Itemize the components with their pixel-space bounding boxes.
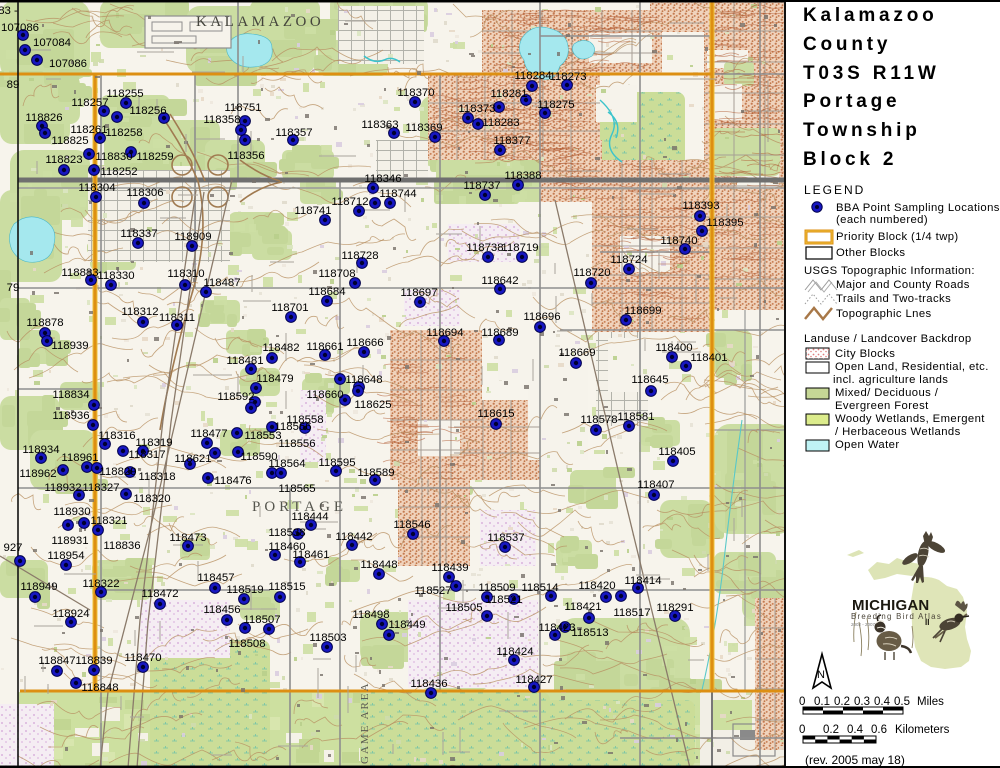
svg-text:118595: 118595 bbox=[318, 457, 355, 469]
svg-text:0.4: 0.4 bbox=[874, 696, 891, 708]
svg-text:incl. agriculture lands: incl. agriculture lands bbox=[833, 374, 948, 386]
svg-text:118258: 118258 bbox=[105, 127, 142, 139]
svg-text:118509: 118509 bbox=[478, 582, 515, 594]
svg-text:Other Blocks: Other Blocks bbox=[836, 247, 905, 259]
svg-text:118724: 118724 bbox=[610, 254, 647, 266]
svg-text:118513: 118513 bbox=[571, 627, 608, 639]
svg-text:118252: 118252 bbox=[100, 166, 137, 178]
svg-text:107086: 107086 bbox=[1, 22, 39, 34]
svg-text:II: II bbox=[925, 618, 929, 627]
svg-text:118291: 118291 bbox=[656, 602, 693, 614]
svg-text:118281: 118281 bbox=[490, 88, 527, 100]
svg-text:118377: 118377 bbox=[493, 135, 530, 147]
svg-text:City Blocks: City Blocks bbox=[835, 348, 895, 360]
svg-text:118521: 118521 bbox=[485, 594, 522, 606]
svg-text:0: 0 bbox=[799, 724, 805, 736]
svg-text:118661: 118661 bbox=[306, 341, 343, 353]
svg-text:118565: 118565 bbox=[278, 483, 315, 495]
svg-text:118954: 118954 bbox=[47, 550, 84, 562]
svg-text:Mixed/ Deciduous /: Mixed/ Deciduous / bbox=[835, 387, 939, 399]
svg-text:BBA Point Sampling Locations: BBA Point Sampling Locations bbox=[836, 202, 1000, 214]
svg-text:118848: 118848 bbox=[81, 682, 118, 694]
svg-text:118337: 118337 bbox=[120, 228, 157, 240]
svg-text:118740: 118740 bbox=[660, 235, 697, 247]
svg-text:118909: 118909 bbox=[174, 231, 211, 243]
svg-text:118829: 118829 bbox=[99, 466, 136, 478]
svg-text:Woody Wetlands, Emergent: Woody Wetlands, Emergent bbox=[835, 413, 985, 425]
svg-text:(rev. 2005 may 18): (rev. 2005 may 18) bbox=[805, 753, 905, 767]
svg-text:927: 927 bbox=[3, 542, 22, 554]
svg-text:118507: 118507 bbox=[243, 614, 280, 626]
svg-text:118448: 118448 bbox=[360, 559, 397, 571]
svg-text:118645: 118645 bbox=[631, 374, 668, 386]
svg-text:89: 89 bbox=[7, 79, 20, 91]
svg-text:118517: 118517 bbox=[613, 607, 650, 619]
svg-text:118393: 118393 bbox=[682, 200, 719, 212]
svg-text:0.6: 0.6 bbox=[871, 724, 887, 736]
svg-text:118878: 118878 bbox=[26, 317, 63, 329]
svg-text:118519: 118519 bbox=[226, 584, 263, 596]
svg-text:118694: 118694 bbox=[426, 327, 463, 339]
svg-text:118697: 118697 bbox=[400, 287, 437, 299]
svg-text:118589: 118589 bbox=[357, 467, 394, 479]
svg-text:118363: 118363 bbox=[361, 119, 398, 131]
svg-text:118322: 118322 bbox=[82, 578, 119, 590]
svg-text:118414: 118414 bbox=[624, 575, 661, 587]
svg-text:118442: 118442 bbox=[335, 531, 372, 543]
svg-text:118830: 118830 bbox=[95, 151, 132, 163]
svg-text:118436: 118436 bbox=[410, 678, 447, 690]
svg-text:118407: 118407 bbox=[637, 479, 674, 491]
svg-text:KALAMAZOO: KALAMAZOO bbox=[196, 14, 324, 30]
svg-text:118823: 118823 bbox=[45, 154, 82, 166]
svg-text:118578: 118578 bbox=[580, 414, 617, 426]
svg-text:118744: 118744 bbox=[379, 188, 416, 200]
svg-text:118261: 118261 bbox=[70, 124, 107, 136]
svg-text:118696: 118696 bbox=[523, 311, 560, 323]
svg-text:118358: 118358 bbox=[203, 114, 240, 126]
svg-text:118395: 118395 bbox=[706, 217, 743, 229]
svg-text:Kilometers: Kilometers bbox=[895, 724, 950, 736]
svg-text:118741: 118741 bbox=[294, 205, 331, 217]
svg-text:118311: 118311 bbox=[159, 312, 195, 324]
svg-text:118883: 118883 bbox=[61, 267, 98, 279]
svg-text:Open Land, Residential, etc.: Open Land, Residential, etc. bbox=[835, 361, 989, 373]
svg-text:118939: 118939 bbox=[51, 340, 88, 352]
svg-text:118256: 118256 bbox=[129, 105, 166, 117]
svg-text:Evergreen Forest: Evergreen Forest bbox=[835, 400, 929, 412]
svg-text:118503: 118503 bbox=[309, 632, 346, 644]
svg-text:Miles: Miles bbox=[917, 696, 944, 708]
svg-text:118505: 118505 bbox=[445, 602, 482, 614]
svg-text:Major and County Roads: Major and County Roads bbox=[836, 279, 970, 291]
svg-text:118537: 118537 bbox=[487, 532, 524, 544]
svg-text:118439: 118439 bbox=[431, 562, 468, 574]
svg-text:118346: 118346 bbox=[364, 173, 401, 185]
svg-text:2002 - 2007: 2002 - 2007 bbox=[851, 622, 876, 627]
svg-text:118461: 118461 bbox=[292, 549, 329, 561]
svg-text:0.4: 0.4 bbox=[847, 724, 864, 736]
svg-text:118666: 118666 bbox=[346, 337, 383, 349]
svg-text:118423: 118423 bbox=[538, 622, 575, 634]
svg-text:118369: 118369 bbox=[405, 122, 442, 134]
svg-text:/ Herbaceous Wetlands: / Herbaceous Wetlands bbox=[835, 426, 961, 438]
svg-text:Open Water: Open Water bbox=[835, 439, 899, 451]
svg-text:118401: 118401 bbox=[690, 352, 727, 364]
svg-text:118936: 118936 bbox=[52, 410, 89, 422]
svg-text:118728: 118728 bbox=[341, 250, 378, 262]
svg-text:118836: 118836 bbox=[103, 540, 140, 552]
svg-text:118689: 118689 bbox=[481, 327, 518, 339]
svg-text:118642: 118642 bbox=[481, 275, 518, 287]
svg-text:118514: 118514 bbox=[521, 582, 558, 594]
svg-text:N: N bbox=[817, 669, 825, 681]
svg-text:118356: 118356 bbox=[227, 150, 264, 162]
svg-text:118962: 118962 bbox=[19, 468, 56, 480]
svg-text:118310: 118310 bbox=[167, 268, 204, 280]
svg-text:Trails and Two-tracks: Trails and Two-tracks bbox=[836, 293, 951, 305]
svg-text:118684: 118684 bbox=[308, 286, 345, 298]
svg-text:118719: 118719 bbox=[501, 242, 538, 254]
svg-text:118259: 118259 bbox=[136, 151, 173, 163]
svg-text:118255: 118255 bbox=[106, 88, 143, 100]
svg-text:118275: 118275 bbox=[537, 99, 574, 111]
svg-text:118388: 118388 bbox=[504, 170, 541, 182]
svg-text:0.5: 0.5 bbox=[894, 696, 910, 708]
svg-text:118316: 118316 bbox=[98, 430, 135, 442]
svg-text:118319: 118319 bbox=[135, 437, 172, 449]
svg-text:118424: 118424 bbox=[496, 646, 533, 658]
svg-text:118321: 118321 bbox=[90, 515, 127, 527]
svg-text:118581: 118581 bbox=[617, 411, 654, 423]
svg-text:118318: 118318 bbox=[138, 471, 175, 483]
svg-text:118615: 118615 bbox=[477, 408, 514, 420]
svg-text:118477: 118477 bbox=[190, 428, 227, 440]
svg-text:118826: 118826 bbox=[25, 112, 62, 124]
svg-text:118961: 118961 bbox=[61, 452, 98, 464]
svg-text:0: 0 bbox=[799, 696, 805, 708]
svg-text:118317: 118317 bbox=[128, 449, 165, 461]
svg-text:118357: 118357 bbox=[275, 127, 312, 139]
svg-text:118738: 118738 bbox=[466, 242, 503, 254]
svg-text:118553: 118553 bbox=[244, 430, 281, 442]
svg-text:118508: 118508 bbox=[228, 638, 265, 650]
svg-text:118479: 118479 bbox=[256, 373, 293, 385]
svg-text:118669: 118669 bbox=[558, 347, 595, 359]
svg-text:118825: 118825 bbox=[51, 135, 88, 147]
svg-text:118648: 118648 bbox=[345, 374, 382, 386]
svg-text:118737: 118737 bbox=[463, 180, 500, 192]
svg-text:118701: 118701 bbox=[271, 302, 308, 314]
svg-text:0.2: 0.2 bbox=[823, 724, 839, 736]
svg-text:118400: 118400 bbox=[655, 342, 692, 354]
svg-text:118538: 118538 bbox=[268, 527, 305, 539]
svg-text:0.3: 0.3 bbox=[854, 696, 870, 708]
svg-text:118930: 118930 bbox=[53, 506, 90, 518]
svg-text:118949: 118949 bbox=[20, 581, 57, 593]
svg-text:118498: 118498 bbox=[352, 609, 389, 621]
svg-text:118257: 118257 bbox=[71, 97, 108, 109]
svg-text:118834: 118834 bbox=[52, 389, 89, 401]
svg-text:118476: 118476 bbox=[214, 475, 251, 487]
svg-text:118330: 118330 bbox=[97, 270, 134, 282]
svg-text:118306: 118306 bbox=[126, 187, 163, 199]
svg-text:118273: 118273 bbox=[549, 71, 586, 83]
svg-text:118699: 118699 bbox=[624, 305, 661, 317]
svg-text:118924: 118924 bbox=[52, 608, 89, 620]
svg-text:118527: 118527 bbox=[414, 585, 451, 597]
svg-text:107084: 107084 bbox=[33, 37, 71, 49]
svg-text:118515: 118515 bbox=[268, 581, 305, 593]
svg-text:Topographic Lnes: Topographic Lnes bbox=[836, 308, 932, 320]
svg-text:118621: 118621 bbox=[174, 453, 211, 465]
svg-text:118456: 118456 bbox=[203, 604, 240, 616]
svg-text:118370: 118370 bbox=[397, 87, 434, 99]
svg-text:118839: 118839 bbox=[75, 655, 112, 667]
svg-text:118481: 118481 bbox=[226, 355, 263, 367]
svg-text:118373: 118373 bbox=[458, 103, 495, 115]
svg-text:118405: 118405 bbox=[658, 446, 695, 458]
svg-text:118556: 118556 bbox=[278, 438, 315, 450]
svg-text:USGS Topographic Information:: USGS Topographic Information: bbox=[804, 265, 975, 277]
svg-text:118283: 118283 bbox=[482, 117, 519, 129]
svg-text:118427: 118427 bbox=[515, 674, 552, 686]
svg-text:118444: 118444 bbox=[291, 511, 328, 523]
svg-text:Landuse / Landcover Backdrop: Landuse / Landcover Backdrop bbox=[804, 333, 972, 345]
svg-text:(each numbered): (each numbered) bbox=[836, 214, 928, 226]
svg-text:118320: 118320 bbox=[133, 493, 170, 505]
svg-text:118327: 118327 bbox=[82, 482, 119, 494]
svg-text:118470: 118470 bbox=[124, 652, 161, 664]
svg-text:118934: 118934 bbox=[22, 444, 59, 456]
svg-text:118473: 118473 bbox=[169, 532, 206, 544]
svg-text:118931: 118931 bbox=[51, 535, 88, 547]
svg-text:118487: 118487 bbox=[203, 277, 240, 289]
svg-text:118751: 118751 bbox=[224, 102, 261, 114]
svg-text:0.1: 0.1 bbox=[814, 696, 830, 708]
svg-text:Priority Block (1/4 twp): Priority Block (1/4 twp) bbox=[836, 231, 959, 243]
svg-text:118482: 118482 bbox=[262, 342, 299, 354]
svg-text:118932: 118932 bbox=[44, 482, 81, 494]
svg-text:118312: 118312 bbox=[121, 306, 158, 318]
svg-text:118720: 118720 bbox=[573, 267, 610, 279]
svg-text:0.2: 0.2 bbox=[834, 696, 850, 708]
svg-text:118420: 118420 bbox=[578, 580, 615, 592]
svg-text:118472: 118472 bbox=[141, 588, 178, 600]
svg-text:83 -: 83 - bbox=[0, 5, 18, 17]
svg-text:118564: 118564 bbox=[268, 458, 305, 470]
svg-text:118304: 118304 bbox=[78, 182, 115, 194]
svg-text:118421: 118421 bbox=[564, 601, 601, 613]
svg-text:118708: 118708 bbox=[318, 268, 355, 280]
svg-text:118546: 118546 bbox=[393, 519, 430, 531]
svg-text:118592: 118592 bbox=[217, 391, 254, 403]
svg-text:118457: 118457 bbox=[197, 572, 234, 584]
svg-text:107086: 107086 bbox=[49, 58, 87, 70]
svg-text:118284: 118284 bbox=[514, 70, 551, 82]
svg-text:118712: 118712 bbox=[331, 196, 368, 208]
svg-text:GAME AREA: GAME AREA bbox=[359, 682, 371, 764]
svg-text:118449: 118449 bbox=[388, 619, 425, 631]
svg-text:118660: 118660 bbox=[306, 389, 343, 401]
svg-text:79: 79 bbox=[7, 282, 20, 294]
svg-text:118625: 118625 bbox=[354, 399, 391, 411]
svg-text:118847: 118847 bbox=[38, 655, 75, 667]
